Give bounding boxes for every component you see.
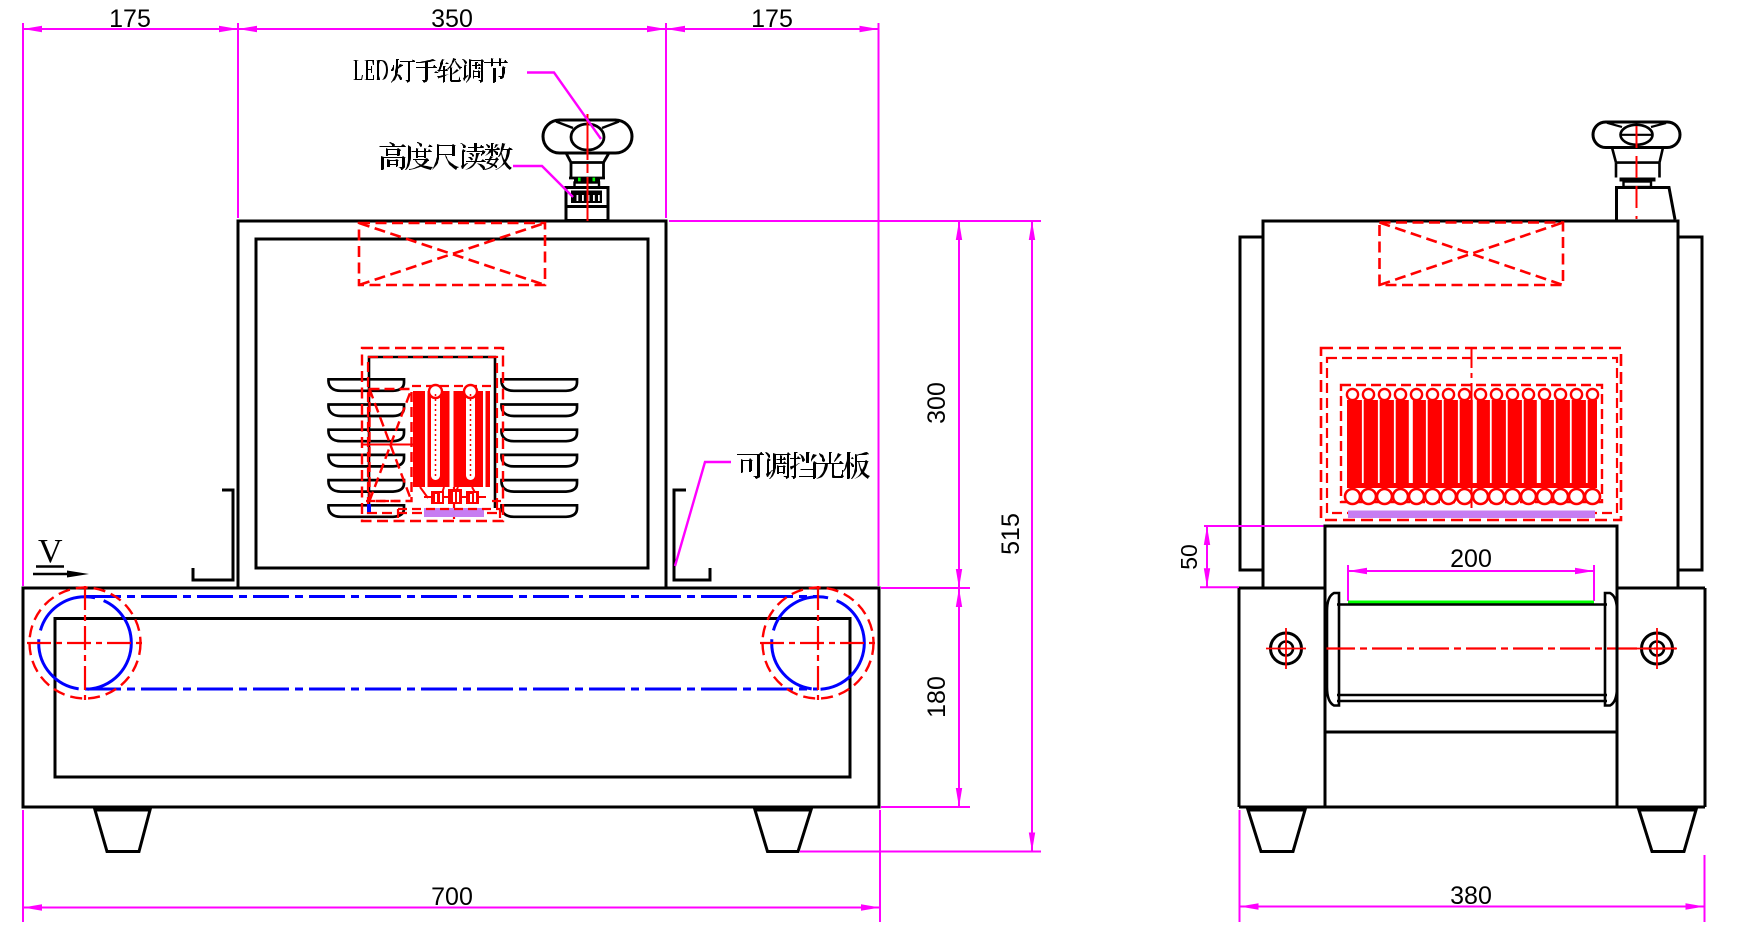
svg-text:175: 175 — [751, 5, 793, 33]
svg-text:515: 515 — [997, 513, 1025, 555]
svg-text:380: 380 — [1450, 882, 1492, 910]
svg-text:200: 200 — [1450, 545, 1492, 573]
svg-text:50: 50 — [1176, 544, 1202, 570]
svg-text:180: 180 — [923, 676, 951, 718]
svg-text:175: 175 — [109, 5, 151, 33]
svg-text:300: 300 — [923, 382, 951, 424]
svg-text:700: 700 — [431, 883, 473, 911]
svg-text:350: 350 — [431, 5, 473, 33]
svg-text:V: V — [38, 533, 63, 570]
